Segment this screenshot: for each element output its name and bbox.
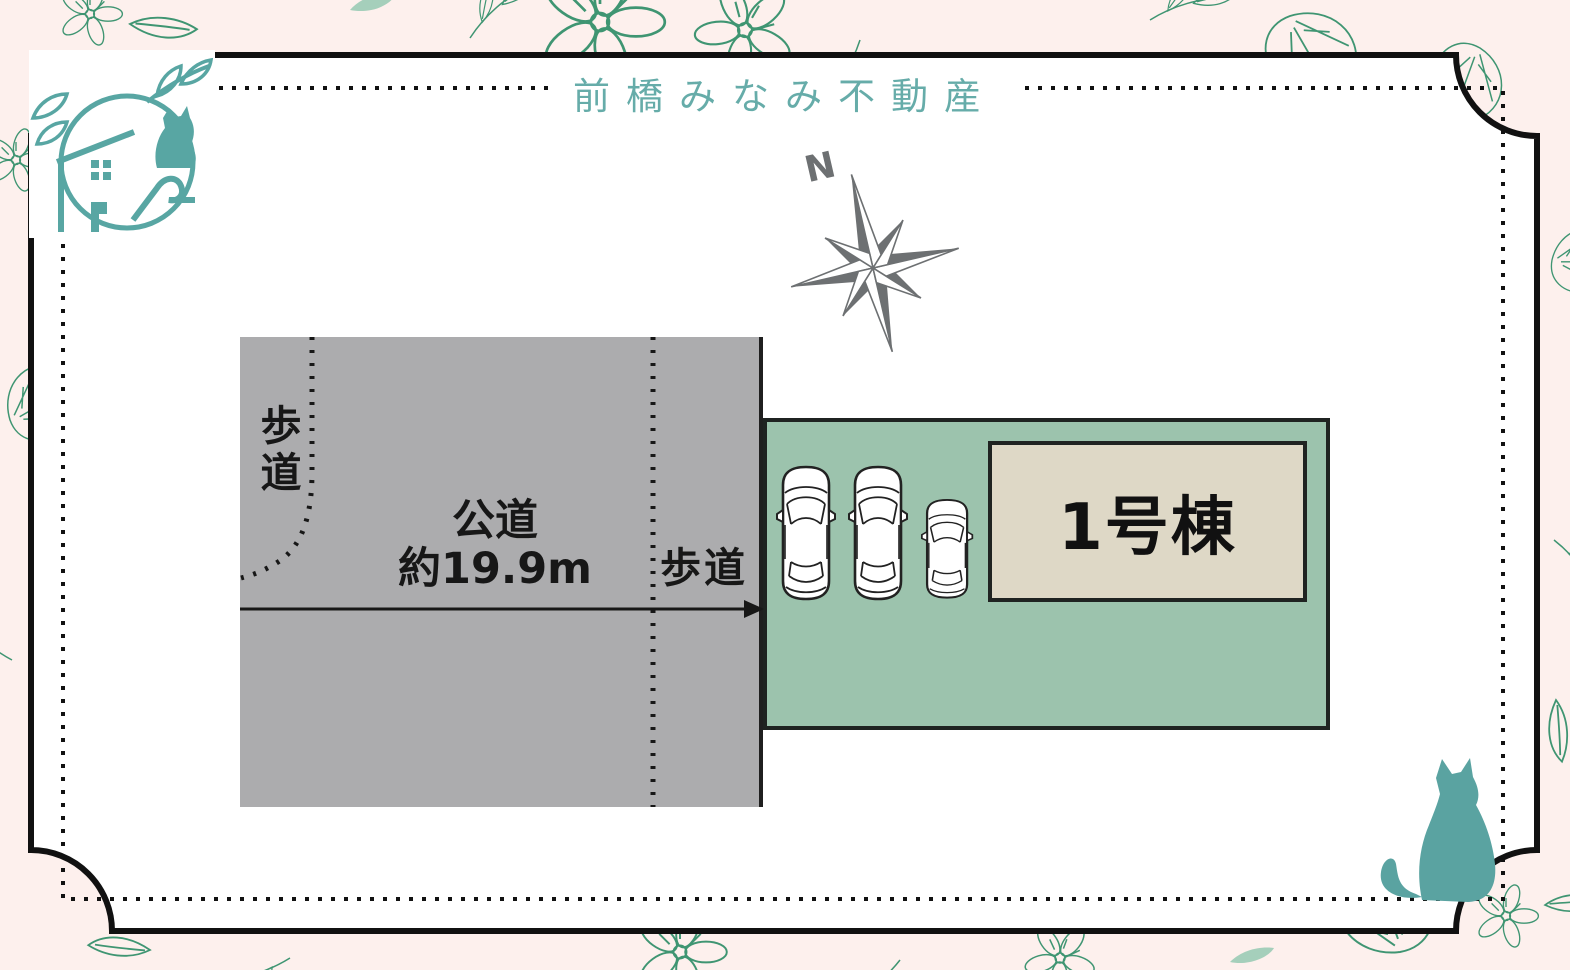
building-label: 1号棟	[1058, 476, 1237, 568]
compass-north-label: N	[801, 144, 840, 191]
cat-silhouette	[1366, 746, 1506, 908]
building-1: 1号棟	[988, 441, 1307, 602]
road-width-text: 約19.9m	[352, 545, 638, 593]
company-logo	[29, 50, 215, 238]
road-surface-text: 公道	[352, 497, 638, 545]
road-width-label: 公道 約19.9m	[352, 497, 638, 593]
sidewalk-left-label: 歩道	[247, 404, 307, 498]
company-title: 前橋みなみ不動産	[549, 66, 1021, 120]
site-plan-flyer: { "header": { "company_name": "前橋みなみ不動産"…	[0, 0, 1570, 970]
compass-rose: N	[762, 122, 978, 371]
sidewalk-right-label: 歩道	[660, 534, 748, 594]
plan-canvas: 1号棟 歩道 公道 約19.9m 歩道	[0, 0, 1570, 970]
